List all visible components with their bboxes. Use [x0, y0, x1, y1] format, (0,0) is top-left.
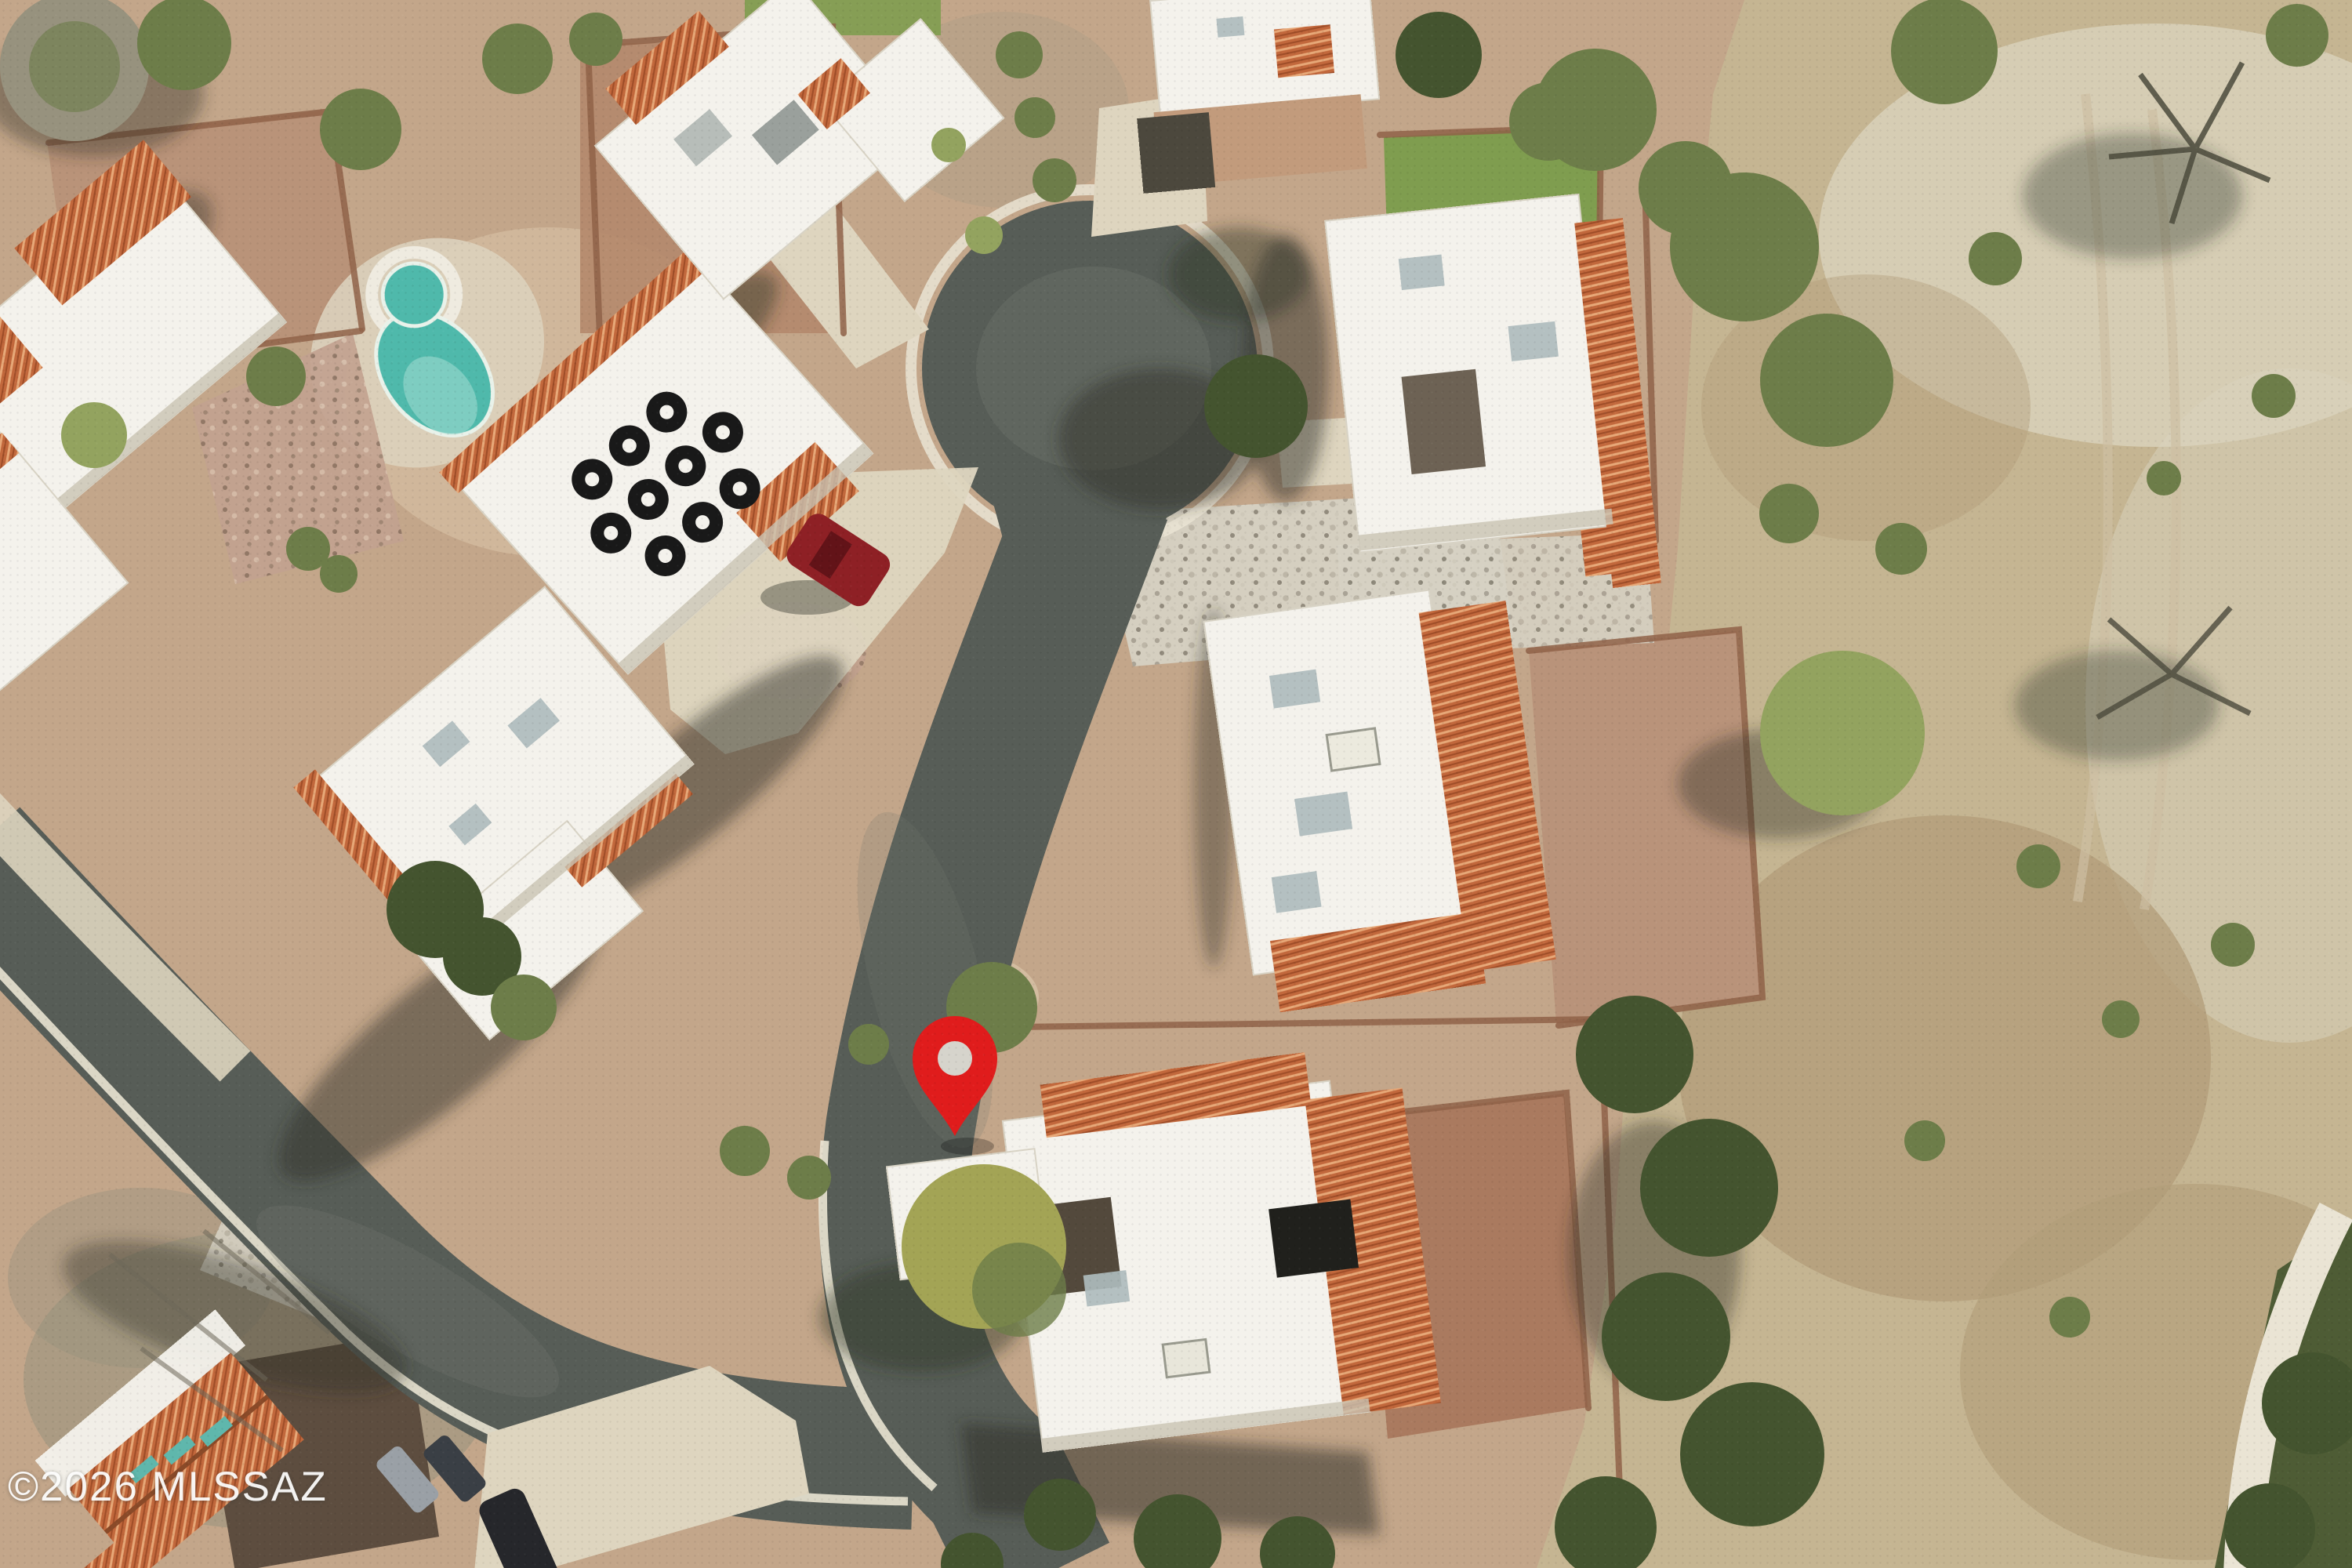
pin-shadow [941, 1138, 994, 1155]
shadow-tree-bulb-2 [1168, 227, 1309, 321]
skylight [1269, 670, 1320, 709]
shrub [931, 128, 966, 162]
aerial-photo: ©2026 MLSSAZ [0, 0, 2352, 1568]
tree [1670, 172, 1819, 321]
ac-unit [1327, 728, 1380, 771]
skylight [1083, 1270, 1130, 1306]
desert-tree [1760, 651, 1925, 815]
shrub [246, 347, 306, 406]
shrub [1875, 523, 1927, 575]
tree [1680, 1382, 1824, 1526]
shrub [2147, 461, 2181, 495]
tree [1640, 1119, 1778, 1257]
shrub [1033, 158, 1076, 202]
tree [137, 0, 231, 90]
shrub [2211, 923, 2255, 967]
skylight [1216, 16, 1244, 38]
shrub [2102, 1000, 2140, 1038]
pin-hole [938, 1041, 972, 1076]
house-right-tile-porch [1581, 522, 1657, 576]
shrub [2252, 374, 2296, 418]
aerial-photo-canvas [0, 0, 2352, 1568]
shrub [482, 24, 553, 94]
shrub [848, 1024, 889, 1065]
shrub [787, 1156, 831, 1200]
shrub [1759, 484, 1819, 543]
house-center [1203, 579, 1558, 1015]
rooftop-unit [1399, 255, 1445, 291]
house-topright [1127, 0, 1385, 194]
watermark: ©2026 MLSSAZ [8, 1463, 328, 1511]
shrub [720, 1126, 770, 1176]
shrub [1904, 1120, 1945, 1161]
yard-wall-pin-north [1016, 1019, 1601, 1027]
tree [1760, 314, 1893, 447]
shrub [569, 13, 622, 66]
rooftop-unit [1508, 321, 1559, 361]
shrub [320, 555, 358, 593]
tree [29, 21, 120, 112]
shrub [2016, 844, 2060, 888]
shrub [2266, 4, 2328, 67]
tree [1576, 996, 1693, 1113]
tree [1396, 12, 1482, 98]
tree [1204, 354, 1308, 458]
tree [972, 1243, 1066, 1337]
shrub [1024, 1479, 1096, 1551]
shrub [320, 89, 401, 170]
skylight [1272, 871, 1322, 913]
tree [1509, 82, 1588, 161]
shrub [1014, 97, 1055, 138]
skylight [1294, 792, 1352, 837]
shrub [996, 31, 1043, 78]
ac-unit [1163, 1339, 1210, 1377]
garage-recess [1137, 112, 1215, 194]
shrub [2049, 1297, 2090, 1338]
tree [491, 975, 557, 1040]
palm-tree [61, 402, 127, 468]
shrub [965, 216, 1003, 254]
house-pin-dark-opening [1269, 1200, 1359, 1278]
tree [1891, 0, 1998, 104]
shrub [1969, 232, 2022, 285]
house-topright-tile [1274, 24, 1334, 78]
house-right-courtyard [1402, 369, 1486, 474]
tree [1602, 1272, 1730, 1401]
